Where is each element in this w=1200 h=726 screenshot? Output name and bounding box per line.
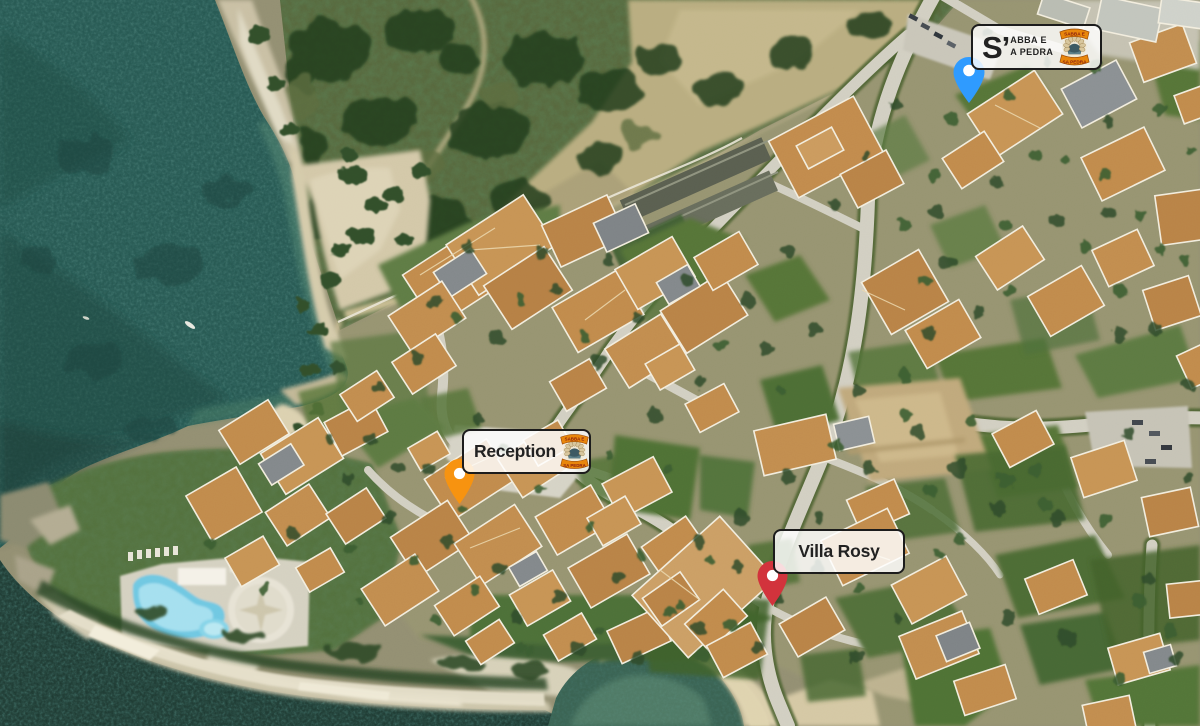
svg-text:SABBA E: SABBA E xyxy=(1064,31,1085,36)
svg-text:SA PEDRA: SA PEDRA xyxy=(563,463,586,468)
svg-text:SABBA E: SABBA E xyxy=(565,436,585,441)
svg-text:SA PEDRA: SA PEDRA xyxy=(1063,60,1088,65)
